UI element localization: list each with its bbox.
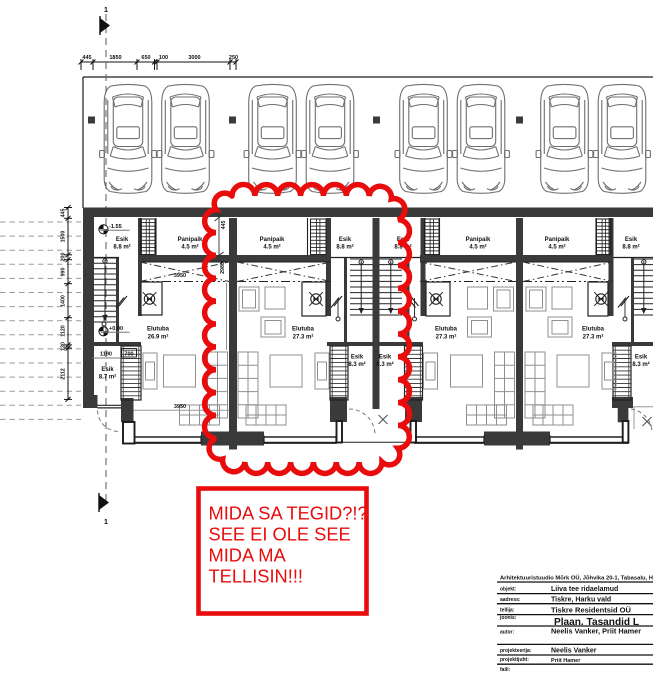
svg-text:1: 1 [104,5,108,14]
svg-text:8.8 m²: 8.8 m² [336,244,353,251]
svg-text:faili:: faili: [500,667,511,673]
svg-text:+0.00: +0.00 [109,326,123,332]
svg-text:26.9 m²: 26.9 m² [148,334,169,341]
svg-text:1400: 1400 [61,295,67,307]
svg-text:4.5 m²: 4.5 m² [181,244,198,251]
svg-text:Esik: Esik [116,237,129,243]
svg-text:Esik: Esik [101,367,114,373]
svg-text:100: 100 [159,55,168,61]
svg-text:Esik: Esik [625,237,638,243]
svg-text:SEE EI OLE SEE: SEE EI OLE SEE [209,524,351,545]
svg-text:1: 1 [104,517,108,526]
svg-text:Neelis Vanker: Neelis Vanker [551,648,597,655]
svg-text:Elutuba: Elutuba [582,327,605,333]
svg-text:445: 445 [221,221,227,230]
svg-text:Esik: Esik [351,355,364,361]
svg-text:445: 445 [82,55,91,61]
svg-text:joonis:: joonis: [499,615,517,621]
svg-text:Arhitektuuristuudio Mõrk OÜ, J: Arhitektuuristuudio Mõrk OÜ, Jõhvika 20-… [500,574,653,581]
svg-text:1120: 1120 [61,325,67,337]
svg-text:4.5 m²: 4.5 m² [469,244,486,251]
svg-text:Panipaik: Panipaik [466,237,491,243]
svg-text:Elutuba: Elutuba [435,327,458,333]
svg-text:tellija:: tellija: [500,608,515,614]
svg-text:1500: 1500 [61,231,67,243]
svg-text:projektijuht:: projektijuht: [500,657,529,663]
svg-text:Esik: Esik [379,355,392,361]
svg-text:8.8 m²: 8.8 m² [113,244,130,251]
svg-text:8.3 m²: 8.3 m² [632,361,649,368]
svg-text:2980: 2980 [220,262,226,274]
svg-text:aadress:: aadress: [500,597,521,603]
svg-text:27.3 m²: 27.3 m² [583,334,604,341]
svg-text:MIDA SA TEGID?!?: MIDA SA TEGID?!? [209,503,368,524]
svg-text:Elutuba: Elutuba [292,327,315,333]
svg-text:Neelis Vanker, Priit Hamer: Neelis Vanker, Priit Hamer [551,627,641,636]
svg-text:Panipaik: Panipaik [545,237,570,243]
svg-text:250: 250 [229,55,238,61]
svg-text:445: 445 [61,209,67,218]
svg-text:4.5 m²: 4.5 m² [263,244,280,251]
svg-text:TELLISIN!!!: TELLISIN!!! [209,566,304,587]
svg-text:1850: 1850 [109,55,121,61]
svg-text:3000: 3000 [188,55,200,61]
svg-text:200: 200 [61,253,67,262]
svg-text:Panipaik: Panipaik [260,237,285,243]
svg-text:autor:: autor: [500,629,515,635]
svg-text:8.3 m²: 8.3 m² [376,361,393,368]
svg-text:MIDA MA: MIDA MA [209,545,287,566]
svg-text:990: 990 [61,268,67,277]
svg-text:Tiskre Residentsid OÜ: Tiskre Residentsid OÜ [551,605,631,614]
svg-text:3950: 3950 [174,273,186,279]
svg-text:3950: 3950 [174,404,186,410]
svg-text:Plaan. Tasandid L: Plaan. Tasandid L [554,617,639,628]
svg-text:130: 130 [61,342,67,351]
svg-text:Liiva tee ridaelamud: Liiva tee ridaelamud [551,586,618,593]
svg-text:2112: 2112 [61,368,67,380]
svg-text:-1.55: -1.55 [109,224,122,230]
svg-text:8.3 m²: 8.3 m² [348,361,365,368]
svg-text:Priit Hamer: Priit Hamer [551,658,581,664]
svg-text:27.3 m²: 27.3 m² [436,334,457,341]
svg-text:projekteerija:: projekteerija: [500,648,532,654]
svg-text:8.7 m²: 8.7 m² [99,374,116,381]
svg-text:8.8 m²: 8.8 m² [622,244,639,251]
svg-text:27.3 m²: 27.3 m² [293,334,314,341]
svg-text:Esik: Esik [635,355,648,361]
svg-text:Esik: Esik [339,237,352,243]
svg-text:650: 650 [141,55,150,61]
svg-text:4.5 m²: 4.5 m² [548,244,565,251]
svg-text:1190: 1190 [100,352,112,358]
svg-text:Elutuba: Elutuba [147,327,170,333]
svg-text:objekt:: objekt: [500,587,517,593]
svg-text:Tiskre, Harku vald: Tiskre, Harku vald [551,597,611,604]
svg-text:Panipaik: Panipaik [178,237,203,243]
